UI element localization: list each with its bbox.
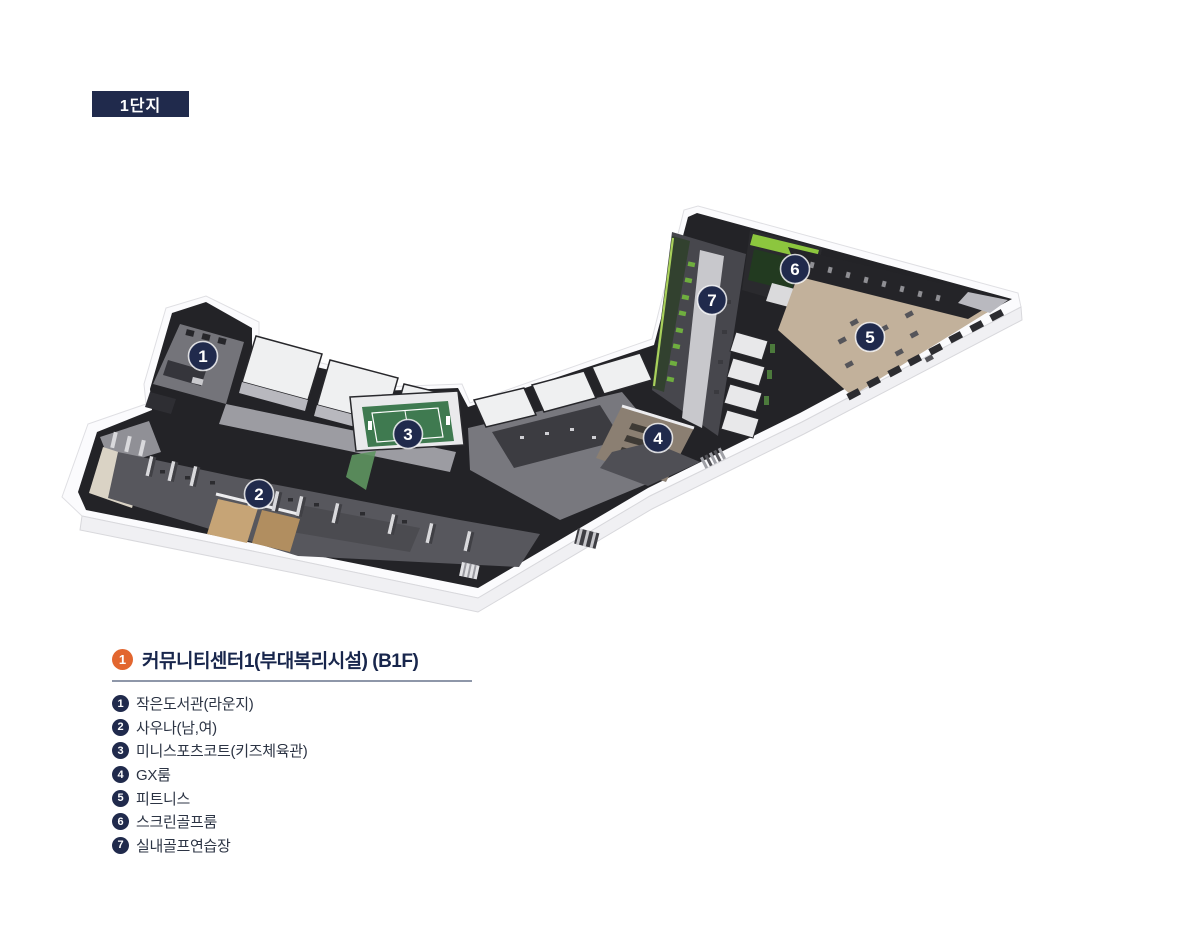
legend-item-5: 5 피트니스 — [112, 786, 532, 810]
legend-item-1-number: 1 — [112, 695, 129, 712]
legend-item-4-label: GX룸 — [136, 764, 171, 785]
legend: 1 커뮤니티센터1(부대복리시설) (B1F) 1 작은도서관(라운지) 2 사… — [112, 646, 532, 857]
legend-item-7-label: 실내골프연습장 — [136, 835, 231, 856]
legend-item-3: 3 미니스포츠코트(키즈체육관) — [112, 739, 532, 763]
legend-title-row: 1 커뮤니티센터1(부대복리시설) (B1F) — [112, 646, 532, 672]
plan-marker-7: 7 — [698, 286, 727, 315]
legend-item-6-label: 스크린골프룸 — [136, 811, 217, 832]
legend-item-2: 2 사우나(남,여) — [112, 716, 532, 740]
legend-item-7: 7 실내골프연습장 — [112, 834, 532, 858]
plan-marker-4: 4 — [644, 424, 673, 453]
legend-item-5-label: 피트니스 — [136, 788, 190, 809]
plan-marker-1: 1 — [189, 342, 218, 371]
legend-item-6-number: 6 — [112, 813, 129, 830]
legend-item-2-label: 사우나(남,여) — [136, 717, 217, 738]
plan-marker-2: 2 — [245, 480, 274, 509]
legend-item-3-label: 미니스포츠코트(키즈체육관) — [136, 740, 307, 761]
legend-item-6: 6 스크린골프룸 — [112, 810, 532, 834]
plan-marker-2-number: 2 — [254, 485, 263, 504]
plan-marker-3: 3 — [394, 420, 423, 449]
plan-marker-5: 5 — [856, 323, 885, 352]
legend-item-4-number: 4 — [112, 766, 129, 783]
page: 1단지 — [0, 0, 1200, 946]
legend-item-4: 4 GX룸 — [112, 763, 532, 787]
plan-marker-4-number: 4 — [653, 429, 663, 448]
legend-underline — [112, 680, 472, 682]
plan-marker-5-number: 5 — [865, 328, 874, 347]
legend-item-7-number: 7 — [112, 837, 129, 854]
legend-item-2-number: 2 — [112, 719, 129, 736]
plan-marker-6-number: 6 — [790, 260, 799, 279]
plan-marker-1-number: 1 — [198, 347, 207, 366]
legend-item-1: 1 작은도서관(라운지) — [112, 692, 532, 716]
legend-items: 1 작은도서관(라운지) 2 사우나(남,여) 3 미니스포츠코트(키즈체육관)… — [112, 692, 532, 857]
plan-marker-3-number: 3 — [403, 425, 412, 444]
legend-title: 커뮤니티센터1(부대복리시설) (B1F) — [142, 646, 418, 673]
legend-item-3-number: 3 — [112, 742, 129, 759]
legend-item-1-label: 작은도서관(라운지) — [136, 693, 253, 714]
legend-item-5-number: 5 — [112, 790, 129, 807]
plan-marker-6: 6 — [781, 255, 810, 284]
legend-title-number: 1 — [112, 649, 133, 670]
plan-marker-7-number: 7 — [707, 291, 716, 310]
